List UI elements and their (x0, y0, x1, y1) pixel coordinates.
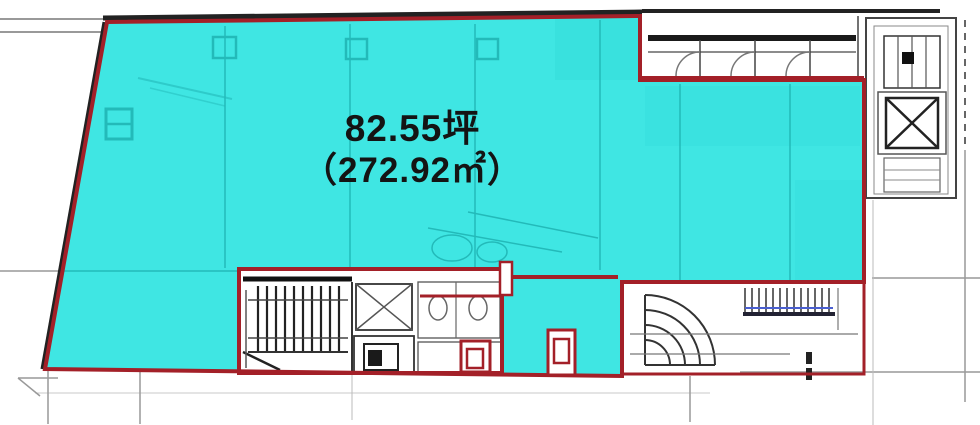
spiral-stair-symbol (630, 288, 858, 380)
shaft-symbol (356, 284, 412, 330)
toilet-symbol (418, 282, 500, 338)
floorplan-drawing (0, 0, 980, 425)
corridor-block (648, 38, 856, 76)
elevator-symbol (878, 92, 946, 154)
pillar-box (461, 341, 490, 372)
area-tsubo: 82.55坪 (235, 108, 590, 151)
stairs-symbol (884, 36, 940, 88)
pillar-box (548, 330, 575, 375)
machine-room (354, 336, 414, 372)
side-stair-elevator-block (866, 18, 956, 198)
highlight-area (45, 16, 864, 376)
floorplan-canvas: 82.55坪 （272.92㎡） (0, 0, 980, 425)
area-sqm: （272.92㎡） (235, 151, 590, 192)
area-label: 82.55坪 （272.92㎡） (235, 108, 590, 192)
core-stairs-symbol (243, 279, 352, 370)
